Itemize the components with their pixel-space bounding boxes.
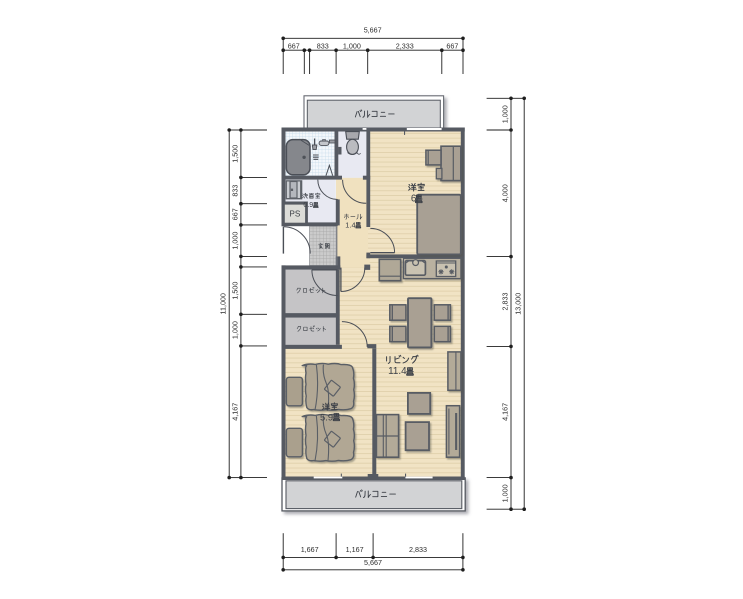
svg-text:1,000: 1,000 (500, 105, 509, 123)
svg-text:1,500: 1,500 (230, 145, 239, 163)
svg-text:1,000: 1,000 (500, 484, 509, 502)
svg-text:4,000: 4,000 (500, 184, 509, 202)
svg-text:5,667: 5,667 (364, 558, 382, 567)
svg-text:11,000: 11,000 (219, 293, 228, 314)
svg-text:1,000: 1,000 (230, 321, 239, 339)
svg-text:11.4: 11.4 (388, 366, 407, 377)
svg-text:4,167: 4,167 (500, 403, 509, 421)
svg-text:2,333: 2,333 (396, 41, 414, 50)
svg-text:667: 667 (230, 208, 239, 220)
svg-text:667: 667 (446, 41, 458, 50)
svg-text:13,000: 13,000 (514, 293, 523, 315)
svg-text:1,667: 1,667 (301, 545, 319, 554)
svg-text:667: 667 (288, 41, 300, 50)
svg-text:0.9: 0.9 (303, 201, 313, 209)
svg-text:833: 833 (230, 185, 239, 197)
svg-text:2,833: 2,833 (409, 545, 427, 554)
svg-text:833: 833 (317, 41, 329, 50)
svg-text:1,500: 1,500 (230, 282, 239, 300)
svg-text:4,167: 4,167 (230, 403, 239, 421)
svg-text:1.4: 1.4 (345, 221, 355, 230)
svg-text:1,000: 1,000 (230, 232, 239, 250)
svg-text:1,167: 1,167 (346, 545, 364, 554)
svg-text:PS: PS (289, 210, 300, 219)
svg-text:5.9: 5.9 (320, 412, 333, 423)
svg-text:1,000: 1,000 (343, 41, 361, 50)
svg-text:2,833: 2,833 (500, 293, 509, 311)
svg-text:5,667: 5,667 (364, 26, 382, 35)
